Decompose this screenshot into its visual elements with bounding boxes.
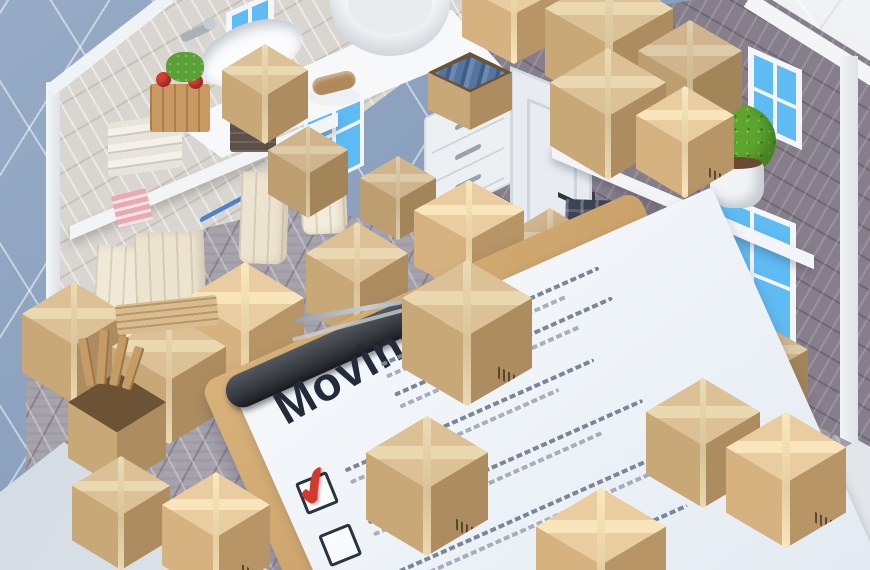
packing-tape xyxy=(118,456,124,570)
packing-tape xyxy=(306,126,311,218)
herb-plant-icon xyxy=(166,52,204,82)
packing-tape xyxy=(782,412,789,548)
packing-tape xyxy=(166,312,173,444)
packing-tape xyxy=(396,156,401,240)
packing-tape xyxy=(262,44,267,144)
packing-tape xyxy=(605,48,612,180)
scene-moving-room: Moving ✔✔ xyxy=(0,0,870,570)
packing-tape xyxy=(700,378,707,508)
wall-right-outer-edge xyxy=(840,56,858,448)
packing-tape xyxy=(463,260,471,406)
packing-tape xyxy=(597,488,605,570)
packing-tape xyxy=(511,0,517,64)
fruit-crate xyxy=(150,84,210,132)
packing-tape xyxy=(682,86,688,198)
packing-tape xyxy=(71,282,77,404)
drawer-handle xyxy=(455,143,481,161)
packing-tape xyxy=(423,416,430,556)
packing-tape xyxy=(213,472,219,570)
